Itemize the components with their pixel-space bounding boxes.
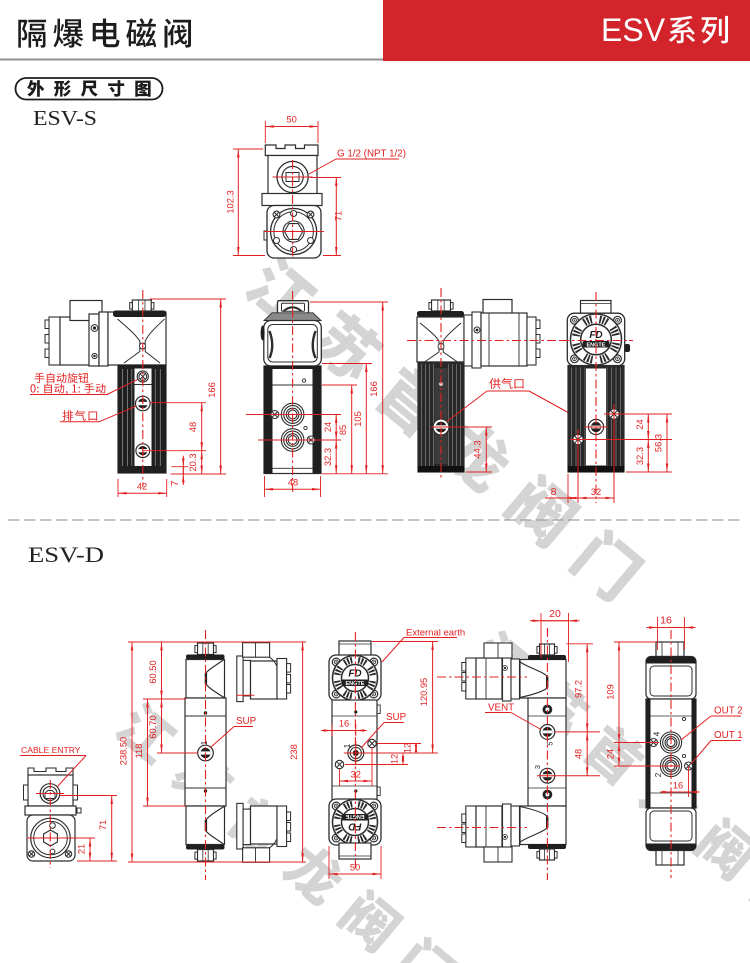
svg-text:32: 32 <box>351 770 361 780</box>
svg-text:8: 8 <box>551 486 557 498</box>
svg-text:3: 3 <box>535 765 542 769</box>
svg-text:OUT 2: OUT 2 <box>714 706 743 717</box>
svg-text:32.3: 32.3 <box>635 447 645 465</box>
svg-text:238: 238 <box>289 744 299 760</box>
svg-text:166: 166 <box>207 382 217 398</box>
svg-text:ENGTE: ENGTE <box>345 813 364 819</box>
svg-text:56.3: 56.3 <box>654 434 664 452</box>
svg-text:SUP: SUP <box>386 712 407 723</box>
svg-text:12: 12 <box>403 743 413 753</box>
svg-text:32: 32 <box>591 487 601 497</box>
svg-text:2: 2 <box>654 772 663 777</box>
svg-text:238.50: 238.50 <box>119 737 129 765</box>
svg-text:44.3: 44.3 <box>472 440 482 458</box>
svg-text:109: 109 <box>606 684 616 700</box>
svg-text:120.95: 120.95 <box>419 678 429 706</box>
svg-text:External earth: External earth <box>406 628 465 639</box>
svg-text:5: 5 <box>548 741 555 745</box>
svg-text:1: 1 <box>343 743 352 748</box>
svg-text:166: 166 <box>369 381 379 397</box>
svg-text:20: 20 <box>549 608 561 620</box>
svg-text:4: 4 <box>653 731 662 736</box>
svg-text:ESV-D: ESV-D <box>28 542 104 567</box>
svg-text:20.3: 20.3 <box>188 453 198 471</box>
svg-text:16: 16 <box>339 719 349 729</box>
svg-text:VENT: VENT <box>488 703 514 714</box>
svg-text:7: 7 <box>169 480 181 486</box>
svg-text:21: 21 <box>77 844 87 854</box>
svg-text:42: 42 <box>137 482 147 492</box>
svg-text:12: 12 <box>390 754 400 764</box>
svg-text:G 1/2 (NPT 1/2): G 1/2 (NPT 1/2) <box>337 149 406 160</box>
svg-text:50: 50 <box>286 115 296 125</box>
svg-text:48: 48 <box>188 422 198 432</box>
svg-text:97.2: 97.2 <box>574 680 584 698</box>
svg-text:71: 71 <box>98 820 108 830</box>
svg-text:60.50: 60.50 <box>148 660 158 683</box>
svg-text:85: 85 <box>338 425 348 435</box>
svg-text:50: 50 <box>350 863 360 873</box>
svg-text:24: 24 <box>606 749 616 759</box>
svg-text:ESV-S: ESV-S <box>33 106 97 130</box>
svg-text:OUT 1: OUT 1 <box>714 730 743 741</box>
svg-text:105: 105 <box>353 411 363 427</box>
svg-text:60.70: 60.70 <box>148 715 158 738</box>
svg-text:32.3: 32.3 <box>323 448 333 466</box>
svg-text:SUP: SUP <box>236 716 257 727</box>
svg-text:118: 118 <box>134 744 144 759</box>
svg-text:24: 24 <box>635 419 645 429</box>
svg-text:48: 48 <box>574 749 584 759</box>
svg-text:48: 48 <box>288 478 298 488</box>
svg-text:24: 24 <box>323 422 333 432</box>
svg-text:71: 71 <box>334 211 344 221</box>
svg-text:16: 16 <box>660 615 672 627</box>
svg-text:1: 1 <box>200 740 209 745</box>
svg-text:16: 16 <box>673 781 683 791</box>
svg-text:CABLE ENTRY: CABLE ENTRY <box>21 745 81 755</box>
svg-text:102.3: 102.3 <box>226 190 236 213</box>
svg-text:ESV: ESV <box>601 12 666 48</box>
